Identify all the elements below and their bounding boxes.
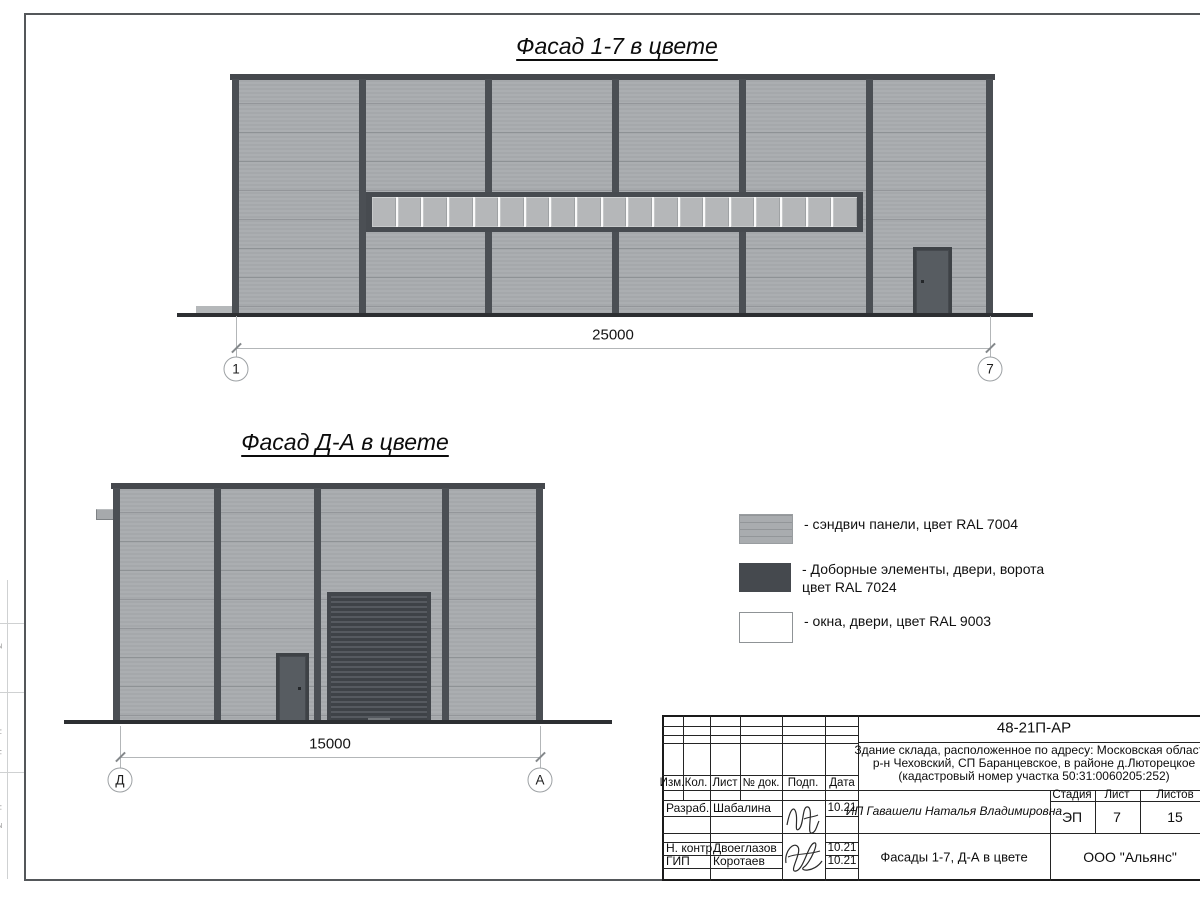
tb-line <box>858 715 859 881</box>
window-pane <box>551 197 575 227</box>
legend-label: - окна, двери, цвет RAL 9003 <box>804 613 991 643</box>
column-mullion <box>214 488 221 723</box>
facade-1-7-title: Фасад 1-7 в цвете <box>516 33 718 60</box>
tb-line <box>662 868 782 869</box>
axis-marker-a: А <box>528 768 553 793</box>
drawing-sheet: { "drawing": { "facade_top": { "title": … <box>0 0 1200 900</box>
dimension-value-25000: 25000 <box>592 327 634 344</box>
margin-hline <box>0 623 24 624</box>
tb-sheets-value: 15 <box>1167 809 1183 825</box>
column-mullion <box>442 488 449 723</box>
tb-line <box>662 743 858 744</box>
window-pane <box>398 197 422 227</box>
door-handle <box>298 687 301 690</box>
dimension-line-25000 <box>236 348 990 349</box>
margin-label-podp: Подп. и дата <box>0 700 5 764</box>
tb-col-data: Дата <box>829 777 854 789</box>
sheet-frame-left <box>24 13 26 881</box>
facade-da-title: Фасад Д-А в цвете <box>241 429 449 456</box>
margin-hline <box>0 772 24 773</box>
tb-line <box>1095 790 1096 833</box>
door-leaf <box>279 656 306 723</box>
window-band <box>366 192 863 232</box>
legend-label-line2: цвет RAL 7024 <box>802 579 1044 597</box>
legend-label-line1: - Доборные элементы, двери, ворота <box>802 561 1044 579</box>
tb-name-shabalina: Шабалина <box>713 801 771 815</box>
legend-swatch-ral7004 <box>739 514 793 544</box>
window-pane <box>603 197 627 227</box>
entrance-door-1-7 <box>913 247 952 314</box>
tb-line <box>662 775 858 776</box>
roller-gate <box>327 592 431 723</box>
window-pane <box>654 197 678 227</box>
legend-label: - сэндвич панели, цвет RAL 7004 <box>804 516 1018 544</box>
margin-label-vzam: Взам. инв. № <box>0 626 5 690</box>
window-pane <box>628 197 652 227</box>
column-mullion <box>359 79 366 314</box>
tb-border <box>662 715 1200 717</box>
gate-slats <box>331 596 427 723</box>
tb-col-kol: Кол. <box>685 777 708 789</box>
legend-swatch-ral7024 <box>739 563 791 592</box>
axis-label: 1 <box>232 362 240 377</box>
dimension-value-15000: 15000 <box>309 736 351 753</box>
tb-sheet-label: Лист <box>1105 789 1130 801</box>
window-pane <box>500 197 524 227</box>
signature-gip <box>780 833 826 879</box>
margin-vline <box>7 580 8 879</box>
axis-marker-7: 7 <box>978 357 1003 382</box>
tb-stage-label: Стадия <box>1052 789 1091 801</box>
tb-line <box>740 715 741 800</box>
dimension-line-15000 <box>120 757 540 758</box>
tb-stage-value: ЭП <box>1062 809 1082 825</box>
tb-date: 10.21 <box>828 855 857 867</box>
axis-label: Д <box>115 773 124 788</box>
window-pane <box>756 197 780 227</box>
tb-address-line1: Здание склада, расположенное по адресу: … <box>854 743 1200 757</box>
tb-col-ndok: № док. <box>743 777 780 789</box>
legend-label: - Доборные элементы, двери, ворота цвет … <box>802 561 1044 596</box>
axis-label: 7 <box>986 362 994 377</box>
window-pane <box>731 197 755 227</box>
legend-item-windows: - окна, двери, цвет RAL 9003 <box>739 612 991 643</box>
window-pane <box>833 197 857 227</box>
column-mullion <box>232 79 239 314</box>
legend-item-panels: - сэндвич панели, цвет RAL 7004 <box>739 514 1018 544</box>
window-pane <box>475 197 499 227</box>
tb-line <box>662 735 858 736</box>
tb-subject: Фасады 1-7, Д-А в цвете <box>880 850 1027 865</box>
axis-label: А <box>535 773 544 788</box>
parapet-band <box>111 483 545 489</box>
tb-col-izm: Изм. <box>660 777 685 789</box>
tb-address-line3: (кадастровый номер участка 50:31:0060205… <box>898 769 1169 783</box>
window-pane <box>680 197 704 227</box>
title-block: Изм. Кол. Лист № док. Подп. Дата Разраб.… <box>662 715 1200 881</box>
column-mullion <box>113 488 120 723</box>
tb-line <box>1140 790 1141 833</box>
ground-line-1-7 <box>177 313 1033 317</box>
tb-border <box>662 879 1200 881</box>
tb-col-list: Лист <box>713 777 738 789</box>
margin-hline <box>0 692 24 693</box>
extension-line <box>990 316 991 358</box>
tb-doc-code: 48-21П-АР <box>997 720 1071 737</box>
tb-role-gip: ГИП <box>666 854 690 868</box>
tb-line <box>662 833 1200 834</box>
extension-line <box>540 726 541 768</box>
window-pane <box>808 197 832 227</box>
tb-company: ООО "Альянс" <box>1083 849 1177 865</box>
tb-role-nkontr: Н. контр. <box>666 841 716 855</box>
tb-line <box>662 816 782 817</box>
extension-line <box>236 316 237 358</box>
sheet-frame-top <box>24 13 1200 15</box>
tb-col-podp: Подп. <box>788 777 819 789</box>
window-pane <box>526 197 550 227</box>
extension-line <box>120 726 121 768</box>
tb-sheets-label: Листов <box>1156 789 1193 801</box>
column-mullion <box>986 79 993 314</box>
window-pane <box>782 197 806 227</box>
margin-label-inv: Инв. № подл. <box>0 783 5 847</box>
window-pane <box>423 197 447 227</box>
window-pane <box>705 197 729 227</box>
axis-marker-1: 1 <box>224 357 249 382</box>
tb-line <box>662 726 858 727</box>
tb-name-korotaev: Коротаев <box>713 854 765 868</box>
facade-da-drawing <box>113 483 543 723</box>
tb-role-razrab: Разраб. <box>666 801 709 815</box>
column-mullion <box>536 488 543 723</box>
window-pane <box>372 197 396 227</box>
tb-date: 10.21 <box>828 842 857 854</box>
window-band-panes <box>372 197 857 227</box>
door-leaf <box>916 250 949 314</box>
entrance-door-da <box>276 653 309 723</box>
tb-line <box>1050 801 1200 802</box>
window-pane <box>577 197 601 227</box>
column-mullion <box>314 488 321 723</box>
tb-line <box>710 715 711 881</box>
tb-address-line2: р-н Чеховский, СП Баранцевское, в районе… <box>873 756 1195 770</box>
tb-client: ИП Гавашели Наталья Владимировна <box>846 804 1062 818</box>
tb-name-dvoeglazov: Двоеглазов <box>713 841 777 855</box>
tb-line <box>825 868 858 869</box>
ground-line-da <box>64 720 612 724</box>
tb-border <box>662 715 664 881</box>
axis-marker-d: Д <box>108 768 133 793</box>
door-handle <box>921 280 924 283</box>
legend-item-dark-elements: - Доборные элементы, двери, ворота цвет … <box>739 563 1044 596</box>
legend-swatch-ral9003 <box>739 612 793 643</box>
facade-1-7-drawing <box>232 74 993 314</box>
column-mullion <box>866 79 873 314</box>
facade-1-7-step <box>196 306 233 313</box>
tb-sheet-value: 7 <box>1113 809 1121 825</box>
window-pane <box>449 197 473 227</box>
